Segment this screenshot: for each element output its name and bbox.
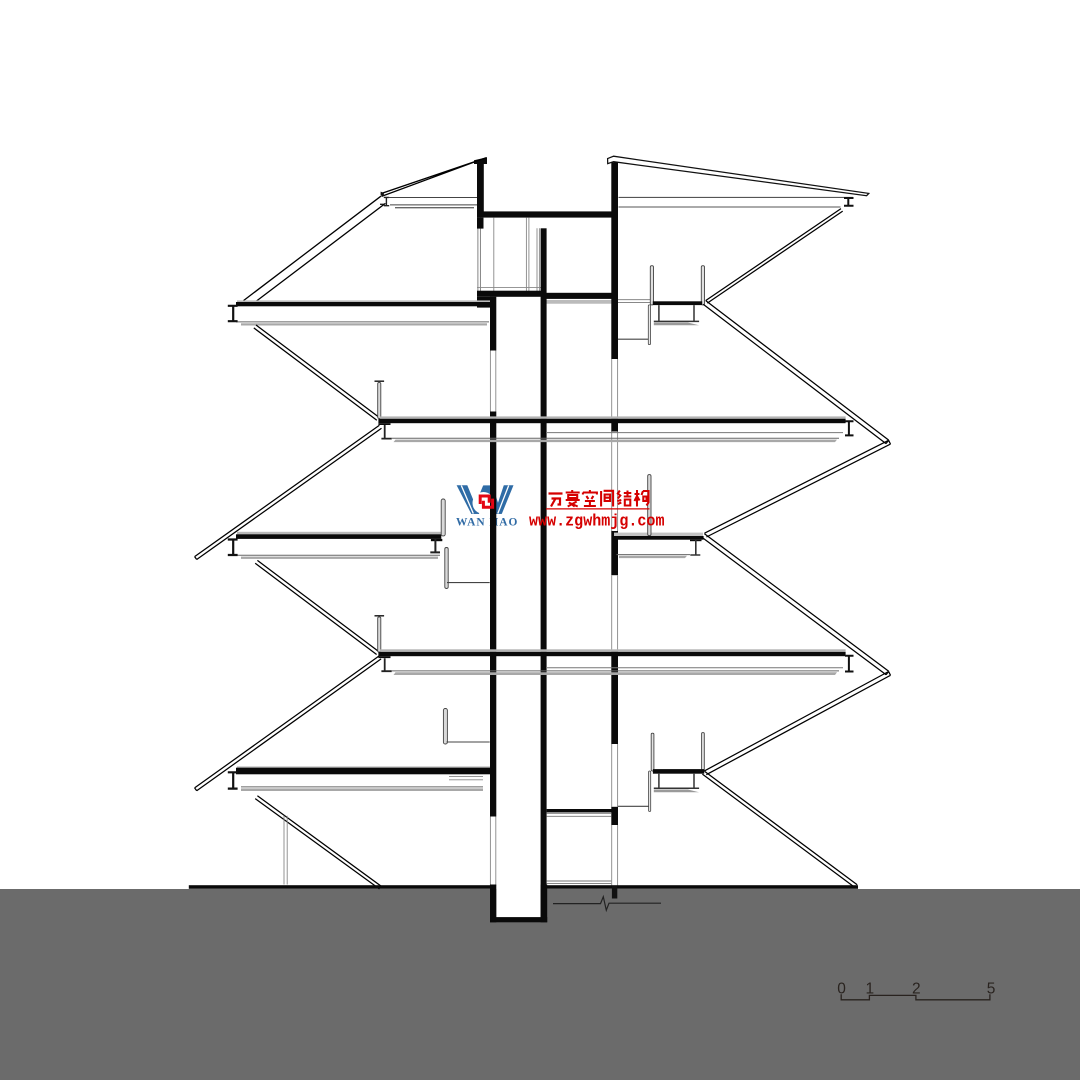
svg-text:WAN HAO: WAN HAO bbox=[456, 516, 518, 528]
svg-text:2: 2 bbox=[912, 981, 921, 998]
svg-text:www.zgwhmjg.com: www.zgwhmjg.com bbox=[529, 512, 665, 531]
svg-text:5: 5 bbox=[987, 981, 996, 998]
svg-text:1: 1 bbox=[865, 981, 874, 998]
svg-text:0: 0 bbox=[837, 981, 846, 998]
